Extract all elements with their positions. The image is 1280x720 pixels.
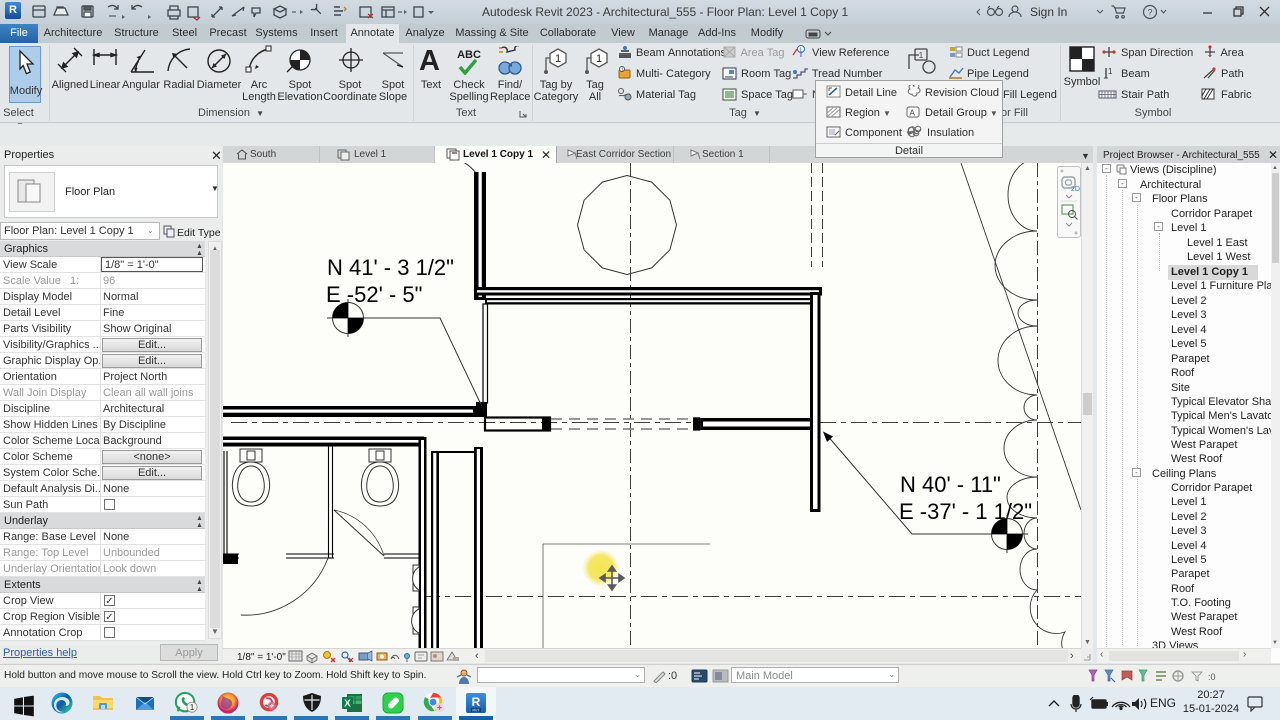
svg-text:X: X	[344, 699, 351, 710]
svg-text:1: 1	[555, 53, 561, 65]
svg-text::0: :0	[1208, 672, 1216, 682]
svg-text:R: R	[472, 695, 481, 709]
svg-text:A: A	[910, 109, 916, 118]
svg-text:N 40' - 11": N 40' - 11"	[900, 472, 1001, 497]
svg-text:1: 1	[596, 53, 602, 65]
svg-text:N 41' - 3 1/2": N 41' - 3 1/2"	[327, 255, 454, 280]
svg-text:E -52' - 5": E -52' - 5"	[326, 282, 422, 307]
svg-text:RVT: RVT	[473, 708, 481, 712]
svg-text:?: ?	[1147, 8, 1152, 18]
svg-text:E -37' - 1 1/2": E -37' - 1 1/2"	[899, 499, 1032, 524]
svg-text:1: 1	[1108, 67, 1113, 76]
svg-text:1: 1	[190, 703, 194, 712]
svg-text:2D: 2D	[1071, 186, 1080, 193]
svg-text:1: 1	[621, 68, 624, 74]
svg-text:1: 1	[919, 51, 924, 60]
